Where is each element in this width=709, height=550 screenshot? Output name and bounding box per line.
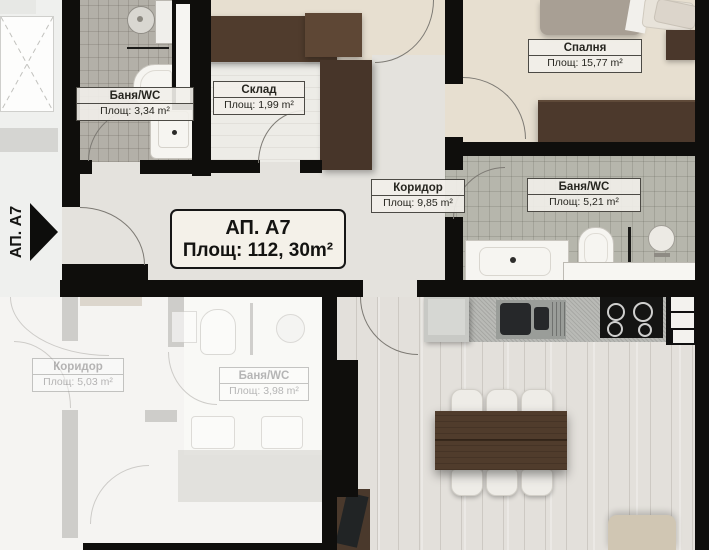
- wardrobe: [305, 13, 362, 57]
- room-name: Коридор: [372, 180, 464, 196]
- room-label-corridor: Коридор Площ: 9,85 m²: [371, 179, 465, 213]
- room-label-bedroom: Спалня Площ: 15,77 m²: [528, 39, 642, 73]
- kitchen-sink-basin: [500, 303, 531, 335]
- wall-marks: [0, 0, 36, 14]
- room-name: Коридор: [33, 359, 123, 375]
- table-seam: [435, 439, 567, 441]
- wall: [83, 543, 337, 550]
- room-area: Площ: 5,21 m²: [528, 195, 640, 211]
- shower-divider-line: [127, 47, 169, 49]
- apartment-area: Площ: 112, 30m²: [183, 240, 333, 262]
- wall: [337, 360, 358, 497]
- kitchen-sink-basin-small: [534, 307, 549, 330]
- wall: [417, 280, 709, 297]
- wall: [62, 264, 148, 280]
- apartment-label: АП. А7 Площ: 112, 30m²: [170, 209, 346, 269]
- armchair: [608, 515, 676, 550]
- floor-plan: Баня/WC Площ: 3,34 m² Склад Площ: 1,99 m…: [0, 0, 709, 550]
- wall: [192, 0, 211, 176]
- wall: [140, 160, 194, 174]
- elevator-cross-icon: [1, 17, 53, 111]
- neighbour-toilet: [200, 309, 236, 355]
- burner-icon: [607, 303, 625, 321]
- room-name: Спалня: [529, 40, 641, 56]
- neighbour-wall: [145, 410, 177, 422]
- neighbour-vanity: [178, 450, 322, 502]
- faucet-dot: [172, 130, 177, 135]
- room-label-neighbour-corridor: Коридор Площ: 5,03 m²: [32, 358, 124, 392]
- room-name: Баня/WC: [528, 179, 640, 195]
- nightstand: [666, 30, 696, 60]
- neighbour-sink: [191, 416, 235, 449]
- shower-head-icon: [648, 225, 675, 252]
- room-label-neighbour-bathroom: Баня/WC Площ: 3,98 m²: [219, 367, 309, 401]
- room-area: Площ: 3,34 m²: [77, 104, 193, 120]
- room-label-storage: Склад Площ: 1,99 m²: [213, 81, 305, 115]
- room-label-bathroom2: Баня/WC Площ: 5,21 m²: [527, 178, 641, 212]
- chair: [521, 469, 553, 496]
- wall: [60, 280, 363, 297]
- chair: [486, 469, 518, 496]
- faucet-dot: [510, 257, 516, 263]
- cabinet-shelf: [673, 330, 694, 343]
- cabinet-shelf: [671, 313, 694, 328]
- apartment-number: АП. А7: [225, 217, 290, 240]
- entrance-label: АП. А7: [8, 196, 28, 268]
- wardrobe: [320, 60, 372, 170]
- wall: [322, 297, 337, 550]
- wall: [445, 0, 463, 84]
- neighbour-cistern: [171, 311, 197, 343]
- shower-handle: [654, 253, 670, 257]
- room-area: Площ: 9,85 m²: [372, 196, 464, 212]
- room-area: Площ: 5,03 m²: [33, 375, 123, 391]
- burner-icon: [607, 321, 623, 337]
- bedroom-wardrobe: [538, 100, 696, 146]
- entrance-arrow-icon: [30, 203, 58, 261]
- wall: [445, 137, 463, 158]
- neighbour-wall: [250, 303, 253, 355]
- wall: [463, 142, 709, 156]
- elevator-shaft: [0, 16, 54, 112]
- neighbour-wall: [62, 410, 78, 538]
- wall: [78, 160, 92, 174]
- fridge-top: [428, 299, 465, 335]
- neighbour-sink: [261, 416, 303, 449]
- bath-bench: [563, 262, 696, 282]
- neighbour-shower-head: [276, 314, 305, 343]
- room-label-bathroom1: Баня/WC Площ: 3,34 m²: [76, 87, 194, 121]
- shower-head-dot: [137, 16, 143, 22]
- burner-icon: [633, 302, 653, 322]
- wall: [195, 160, 260, 173]
- drainer: [552, 302, 565, 336]
- entrance-gap-floor: [62, 207, 80, 264]
- room-name: Склад: [214, 82, 304, 98]
- chair: [451, 469, 483, 496]
- burner-icon: [638, 323, 652, 337]
- cabinet-shelf: [671, 296, 694, 311]
- room-area: Площ: 1,99 m²: [214, 98, 304, 114]
- wall: [445, 157, 463, 170]
- room-area: Площ: 3,98 m²: [220, 384, 308, 400]
- corridor-floor-a: [372, 55, 445, 157]
- room-name: Баня/WC: [77, 88, 193, 104]
- shower-column: [155, 0, 173, 44]
- room-name: Баня/WC: [220, 368, 308, 384]
- stair-landing: [0, 128, 58, 152]
- wall: [695, 0, 709, 550]
- room-area: Площ: 15,77 m²: [529, 56, 641, 72]
